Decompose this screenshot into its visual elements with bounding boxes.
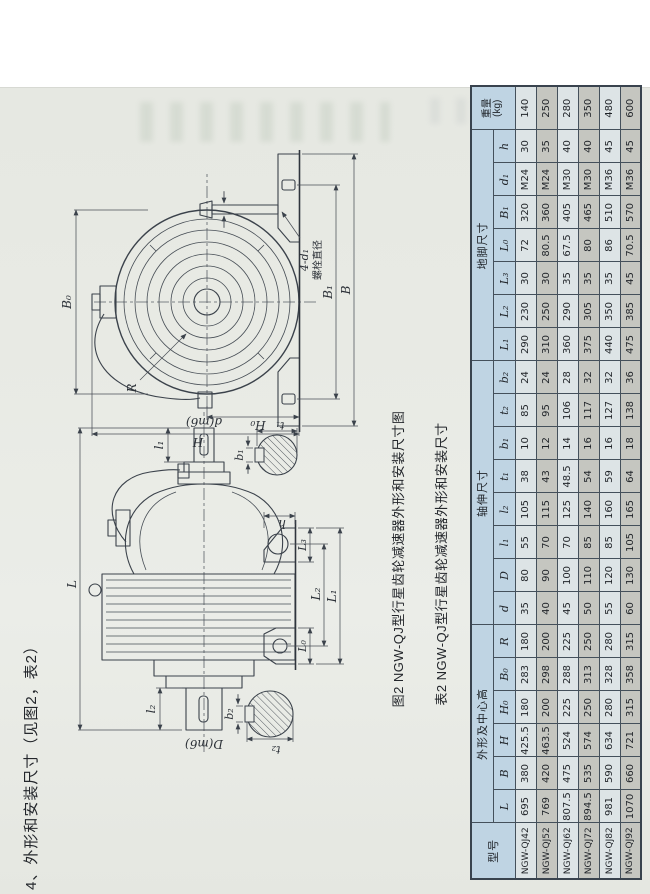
table-cell: 721 <box>620 724 641 757</box>
section-heading: 4、外形和安装尺寸（见图2，表2） <box>20 638 41 890</box>
table-row: NGW-QJ42695380425.5180283180358055105381… <box>515 86 536 879</box>
dim-label-R: R <box>125 383 139 393</box>
model-cell: NGW-QJ82 <box>599 823 620 879</box>
table-cell: 30 <box>515 262 536 295</box>
table-cell: 510 <box>599 196 620 229</box>
table-cell: 45 <box>620 130 641 163</box>
table-cell: 28 <box>557 361 578 394</box>
table-cell: 570 <box>620 196 641 229</box>
table-cell: 165 <box>620 493 641 526</box>
table-cell: 981 <box>599 790 620 823</box>
col-subheader-9: l₂ <box>493 493 515 526</box>
table-row: NGW-QJ72894.5535574250313250501108514054… <box>578 86 599 879</box>
table-cell: 1070 <box>620 790 641 823</box>
col-subheader-13: b₂ <box>493 361 515 394</box>
table-cell: 80 <box>578 229 599 262</box>
table-cell: 315 <box>620 625 641 658</box>
table-row: NGW-QJ9210706607213153583156013010516564… <box>620 86 641 879</box>
table-cell: 55 <box>599 592 620 625</box>
table-row: NGW-QJ62807.5475524225288225451007012548… <box>557 86 578 879</box>
table-cell: 230 <box>515 295 536 328</box>
model-cell: NGW-QJ72 <box>578 823 599 879</box>
model-cell: NGW-QJ62 <box>557 823 578 879</box>
table-cell: 70 <box>536 526 557 559</box>
table-cell: 160 <box>599 493 620 526</box>
dimension-table-wrap: 型号外形及中心高轴伸尺寸地脚尺寸重量 (kg)LBHH₀B₀RdDl₁l₂t₁b… <box>470 85 642 880</box>
dim-label-b1: b₁ <box>233 449 246 460</box>
table-cell: 405 <box>557 196 578 229</box>
col-subheader-10: t₁ <box>493 460 515 493</box>
table-cell: 310 <box>536 328 557 361</box>
table-cell: 894.5 <box>578 790 599 823</box>
dim-label-H0: H₀ <box>250 418 266 432</box>
col-subheader-6: d <box>493 592 515 625</box>
table-cell: 117 <box>578 394 599 427</box>
table-cell: 100 <box>557 559 578 592</box>
table-cell: 125 <box>557 493 578 526</box>
table-cell: 60 <box>620 592 641 625</box>
dim-label-bolt-qty: 4-d₁ <box>298 249 311 272</box>
col-subheader-1: B <box>493 757 515 790</box>
table-cell: 35 <box>578 262 599 295</box>
table-cell: 350 <box>578 86 599 130</box>
rotated-page: 4、外形和安装尺寸（见图2，表2） <box>0 0 650 894</box>
table-cell: 35 <box>536 130 557 163</box>
table-cell: 200 <box>536 625 557 658</box>
table-cell: 35 <box>557 262 578 295</box>
table-cell: 328 <box>599 658 620 691</box>
table-row: NGW-QJ8298159063428032828055120851605916… <box>599 86 620 879</box>
table-cell: 385 <box>620 295 641 328</box>
col-subheader-16: L₃ <box>493 262 515 295</box>
table-cell: 225 <box>557 691 578 724</box>
table-cell: 48.5 <box>557 460 578 493</box>
table-caption: 表2 NGW-QJ型行星齿轮减速器外形和安装尺寸 <box>431 374 450 754</box>
table-cell: 105 <box>515 493 536 526</box>
table-cell: 283 <box>515 658 536 691</box>
table-cell: M24 <box>536 163 557 196</box>
model-cell: NGW-QJ92 <box>620 823 641 879</box>
table-cell: 45 <box>557 592 578 625</box>
table-row: NGW-QJ52769420463.5200298200409070115431… <box>536 86 557 879</box>
table-cell: 24 <box>536 361 557 394</box>
table-cell: 138 <box>620 394 641 427</box>
col-group-header-shaft: 轴伸尺寸 <box>471 361 493 625</box>
table-cell: 360 <box>536 196 557 229</box>
table-cell: 90 <box>536 559 557 592</box>
col-subheader-20: h <box>493 130 515 163</box>
table-cell: 280 <box>557 86 578 130</box>
table-cell: 380 <box>515 757 536 790</box>
model-cell: NGW-QJ42 <box>515 823 536 879</box>
dim-label-L2: L₂ <box>309 587 323 601</box>
table-cell: 290 <box>515 328 536 361</box>
col-subheader-5: R <box>493 625 515 658</box>
col-group-header-weight: 重量 (kg) <box>471 86 515 130</box>
table-cell: 80.5 <box>536 229 557 262</box>
table-cell: 225 <box>557 625 578 658</box>
table-cell: 32 <box>578 361 599 394</box>
scanned-page-viewport: 4、外形和安装尺寸（见图2，表2） <box>0 0 650 894</box>
table-cell: 360 <box>557 328 578 361</box>
table-cell: 14 <box>557 427 578 460</box>
table-cell: 10 <box>515 427 536 460</box>
table-cell: 140 <box>515 86 536 130</box>
table-cell: 86 <box>599 229 620 262</box>
table-cell: 105 <box>620 526 641 559</box>
table-cell: 250 <box>578 691 599 724</box>
table-cell: 16 <box>599 427 620 460</box>
table-cell: 85 <box>515 394 536 427</box>
table-cell: 288 <box>557 658 578 691</box>
table-cell: 358 <box>620 658 641 691</box>
table-cell: 313 <box>578 658 599 691</box>
col-subheader-19: d₁ <box>493 163 515 196</box>
table-cell: 320 <box>515 196 536 229</box>
table-cell: 280 <box>599 691 620 724</box>
col-group-header-model: 型号 <box>471 823 515 879</box>
table-cell: 54 <box>578 460 599 493</box>
table-cell: 45 <box>620 262 641 295</box>
dim-label-D-shaft: D(m6) <box>185 737 224 751</box>
table-cell: 110 <box>578 559 599 592</box>
col-subheader-3: H₀ <box>493 691 515 724</box>
table-cell: 55 <box>515 526 536 559</box>
table-cell: 574 <box>578 724 599 757</box>
dim-label-B0: B₀ <box>60 295 74 310</box>
table-cell: 420 <box>536 757 557 790</box>
dim-label-L: L <box>65 580 79 589</box>
table-cell: 36 <box>620 361 641 394</box>
table-cell: 180 <box>515 625 536 658</box>
table-cell: M30 <box>578 163 599 196</box>
table-cell: 12 <box>536 427 557 460</box>
table-cell: 290 <box>557 295 578 328</box>
col-subheader-14: L₁ <box>493 328 515 361</box>
col-subheader-18: B₁ <box>493 196 515 229</box>
table-cell: 40 <box>557 130 578 163</box>
end-view-drawing: B₀ R H H₀ 4-d₁ 螺栓直径 B₁ B <box>48 136 388 446</box>
col-subheader-12: t₂ <box>493 394 515 427</box>
table-cell: 695 <box>515 790 536 823</box>
table-cell: 72 <box>515 229 536 262</box>
table-cell: 50 <box>578 592 599 625</box>
table-cell: 180 <box>515 691 536 724</box>
table-cell: 375 <box>578 328 599 361</box>
dim-label-l2: l₂ <box>144 704 158 713</box>
dimension-table: 型号外形及中心高轴伸尺寸地脚尺寸重量 (kg)LBHH₀B₀RdDl₁l₂t₁b… <box>470 85 642 880</box>
dim-label-B: B <box>339 285 353 295</box>
table-cell: 250 <box>578 625 599 658</box>
table-cell: 35 <box>599 262 620 295</box>
dim-label-b2: b₂ <box>223 708 236 719</box>
col-subheader-7: D <box>493 559 515 592</box>
table-cell: 769 <box>536 790 557 823</box>
model-cell: NGW-QJ52 <box>536 823 557 879</box>
table-cell: 70 <box>557 526 578 559</box>
table-cell: 425.5 <box>515 724 536 757</box>
table-cell: 807.5 <box>557 790 578 823</box>
table-cell: 475 <box>557 757 578 790</box>
bolt-diameter-note: 螺栓直径 <box>311 240 324 280</box>
table-cell: 115 <box>536 493 557 526</box>
table-cell: 85 <box>578 526 599 559</box>
table-cell: 45 <box>599 130 620 163</box>
table-cell: 634 <box>599 724 620 757</box>
table-cell: 35 <box>515 592 536 625</box>
table-cell: 70.5 <box>620 229 641 262</box>
table-cell: 480 <box>599 86 620 130</box>
table-cell: 130 <box>620 559 641 592</box>
table-cell: 120 <box>599 559 620 592</box>
table-cell: 590 <box>599 757 620 790</box>
table-cell: 475 <box>620 328 641 361</box>
end-view-dimensions: B₀ R H H₀ 4-d₁ 螺栓直径 B₁ B <box>60 154 358 449</box>
dim-label-h: h <box>278 517 286 531</box>
table-cell: 463.5 <box>536 724 557 757</box>
table-cell: 600 <box>620 86 641 130</box>
table-cell: 250 <box>536 295 557 328</box>
table-cell: 315 <box>620 691 641 724</box>
table-cell: 298 <box>536 658 557 691</box>
dim-label-H: H <box>192 435 204 449</box>
table-cell: 24 <box>515 361 536 394</box>
dim-label-B1: B₁ <box>321 285 335 300</box>
table-cell: 140 <box>578 493 599 526</box>
table-cell: 95 <box>536 394 557 427</box>
table-cell: 524 <box>557 724 578 757</box>
figure-caption: 图2 NGW-QJ型行星齿轮减速器外形和安装尺寸图 <box>388 364 407 754</box>
table-cell: 250 <box>536 86 557 130</box>
col-subheader-15: L₂ <box>493 295 515 328</box>
table-cell: 16 <box>578 427 599 460</box>
table-cell: 67.5 <box>557 229 578 262</box>
table-cell: 38 <box>515 460 536 493</box>
table-cell: 32 <box>599 361 620 394</box>
key-section-detail-output: b₂ t₂ <box>223 691 293 756</box>
col-subheader-4: B₀ <box>493 658 515 691</box>
table-cell: 64 <box>620 460 641 493</box>
dim-label-L1: L₁ <box>325 590 339 604</box>
table-cell: M36 <box>599 163 620 196</box>
table-cell: 535 <box>578 757 599 790</box>
col-subheader-0: L <box>493 790 515 823</box>
table-cell: 350 <box>599 295 620 328</box>
side-view-dimensions: L l₂ l₁ D(m6) d(m6) h L₃ L₀ <box>65 415 344 751</box>
side-view-drawing: L l₂ l₁ D(m6) d(m6) h L₃ L₀ <box>50 408 390 786</box>
table-cell: 305 <box>578 295 599 328</box>
table-cell: 40 <box>578 130 599 163</box>
table-cell: 440 <box>599 328 620 361</box>
table-cell: 85 <box>599 526 620 559</box>
table-cell: 465 <box>578 196 599 229</box>
table-cell: 30 <box>536 262 557 295</box>
table-cell: 40 <box>536 592 557 625</box>
dim-label-t2: t₂ <box>272 743 281 756</box>
col-subheader-11: b₁ <box>493 427 515 460</box>
col-group-header-foot: 地脚尺寸 <box>471 130 493 361</box>
col-group-header-outline: 外形及中心高 <box>471 625 493 823</box>
table-cell: 280 <box>599 625 620 658</box>
reducer-side-outline <box>89 428 296 730</box>
table-cell: M36 <box>620 163 641 196</box>
table-cell: 30 <box>515 130 536 163</box>
table-cell: 200 <box>536 691 557 724</box>
table-cell: 18 <box>620 427 641 460</box>
table-cell: 80 <box>515 559 536 592</box>
table-cell: 59 <box>599 460 620 493</box>
col-subheader-2: H <box>493 724 515 757</box>
table-cell: M24 <box>515 163 536 196</box>
dim-label-L3: L₃ <box>296 539 309 552</box>
table-cell: 106 <box>557 394 578 427</box>
table-cell: 660 <box>620 757 641 790</box>
table-cell: 43 <box>536 460 557 493</box>
col-subheader-17: L₀ <box>493 229 515 262</box>
col-subheader-8: l₁ <box>493 526 515 559</box>
table-cell: 127 <box>599 394 620 427</box>
table-cell: M30 <box>557 163 578 196</box>
